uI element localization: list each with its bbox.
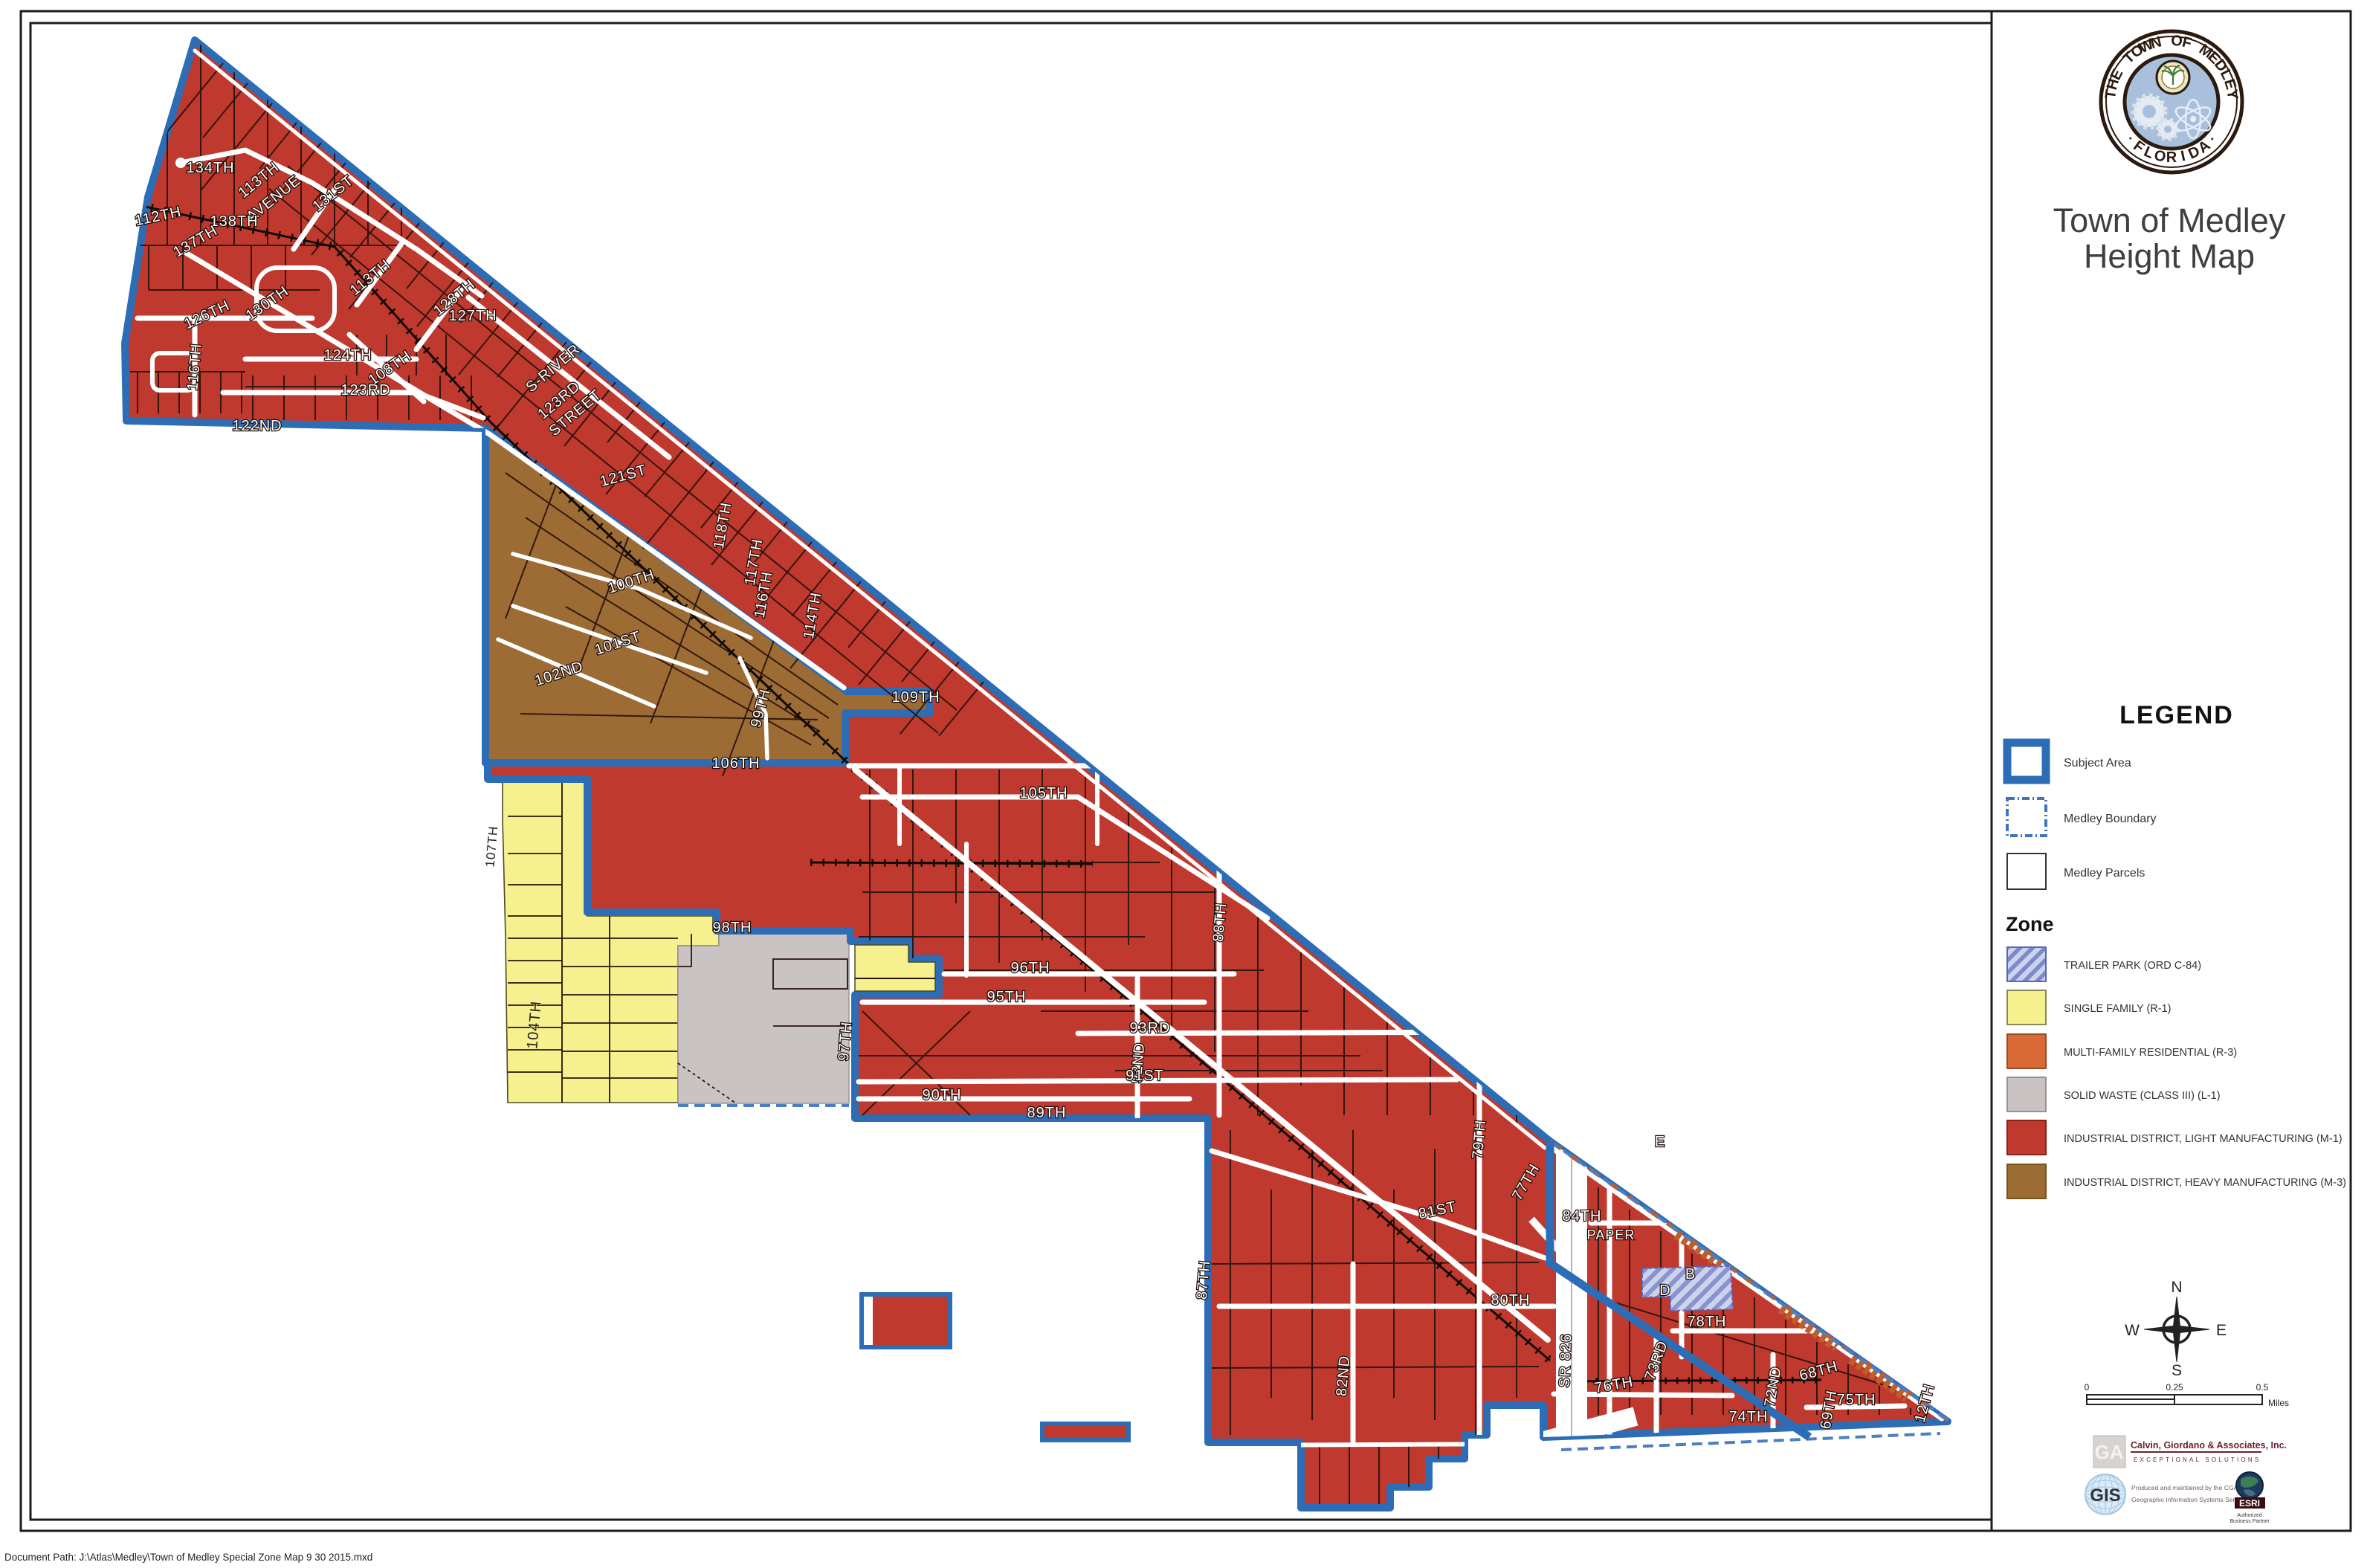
svg-text:Subject Area: Subject Area [2064, 757, 2131, 770]
svg-text:107TH: 107TH [483, 825, 501, 868]
svg-text:106TH: 106TH [711, 755, 760, 772]
svg-text:Zone: Zone [2006, 913, 2054, 935]
svg-text:Business Partner: Business Partner [2229, 1519, 2270, 1524]
svg-text:Document Path: J:\Atlas\Medley: Document Path: J:\Atlas\Medley\Town of M… [4, 1552, 372, 1563]
svg-text:R: R [2166, 149, 2177, 166]
svg-text:MULTI-FAMILY RESIDENTIAL (R-3): MULTI-FAMILY RESIDENTIAL (R-3) [2064, 1047, 2237, 1059]
svg-text:B: B [1685, 1266, 1696, 1283]
svg-text:Produced and maintained by the: Produced and maintained by the CGA [2131, 1484, 2238, 1491]
svg-text:D: D [1659, 1283, 1670, 1299]
svg-text:ESRI: ESRI [2239, 1498, 2260, 1509]
svg-text:Medley Parcels: Medley Parcels [2064, 867, 2145, 880]
svg-text:Medley Boundary: Medley Boundary [2064, 813, 2157, 825]
svg-text:N: N [2171, 1279, 2182, 1296]
svg-text:95TH: 95TH [987, 989, 1027, 1005]
svg-text:PAPER: PAPER [1587, 1227, 1636, 1242]
svg-text:79TH: 79TH [1470, 1119, 1490, 1160]
svg-text:0.25: 0.25 [2166, 1382, 2183, 1393]
svg-text:87TH: 87TH [1194, 1259, 1214, 1300]
svg-text:98TH: 98TH [713, 920, 752, 936]
svg-text:Height Map: Height Map [2084, 237, 2255, 275]
svg-text:93RD: 93RD [1129, 1020, 1170, 1036]
svg-text:LEGEND: LEGEND [2119, 701, 2234, 729]
svg-text:0.5: 0.5 [2256, 1382, 2269, 1393]
svg-text:INDUSTRIAL DISTRICT, LIGHT MAN: INDUSTRIAL DISTRICT, LIGHT MANUFACTURING… [2064, 1133, 2342, 1145]
svg-text:EXCEPTIONAL SOLUTIONS: EXCEPTIONAL SOLUTIONS [2134, 1456, 2261, 1463]
svg-text:123RD: 123RD [340, 382, 390, 399]
svg-text:INDUSTRIAL DISTRICT, HEAVY MAN: INDUSTRIAL DISTRICT, HEAVY MANUFACTURING… [2064, 1177, 2346, 1189]
svg-text:122ND: 122ND [232, 418, 282, 434]
svg-text:89TH: 89TH [1027, 1105, 1067, 1121]
svg-text:S: S [2172, 1362, 2182, 1379]
svg-text:E: E [2216, 1322, 2227, 1339]
svg-text:97TH: 97TH [836, 1021, 856, 1062]
svg-text:105TH: 105TH [1019, 785, 1068, 801]
svg-text:138TH: 138TH [210, 213, 258, 230]
svg-text:124TH: 124TH [323, 347, 372, 364]
svg-text:Authorized: Authorized [2237, 1513, 2262, 1518]
svg-text:74TH: 74TH [1729, 1409, 1769, 1425]
svg-text:SR 826: SR 826 [1557, 1333, 1575, 1387]
svg-text:88TH: 88TH [1210, 902, 1230, 943]
svg-text:GIS: GIS [2090, 1485, 2120, 1506]
svg-text:84TH: 84TH [1563, 1208, 1602, 1225]
svg-text:SOLID WASTE (CLASS III) (L-1): SOLID WASTE (CLASS III) (L-1) [2064, 1090, 2221, 1102]
svg-text:78TH: 78TH [1688, 1314, 1727, 1330]
svg-text:90TH: 90TH [923, 1087, 962, 1103]
svg-text:Geographic Information Systems: Geographic Information Systems Services [2131, 1496, 2250, 1503]
svg-text:127TH: 127TH [448, 308, 497, 324]
svg-text:96TH: 96TH [1011, 960, 1050, 976]
svg-text:75TH: 75TH [1837, 1392, 1876, 1408]
svg-text:109TH: 109TH [891, 689, 940, 706]
svg-text:134TH: 134TH [186, 160, 234, 176]
svg-text:0: 0 [2085, 1382, 2090, 1393]
svg-text:GA: GA [2095, 1441, 2124, 1463]
svg-text:Miles: Miles [2268, 1398, 2289, 1408]
svg-text:SINGLE FAMILY (R-1): SINGLE FAMILY (R-1) [2064, 1003, 2172, 1015]
svg-text:80TH: 80TH [1491, 1292, 1531, 1309]
svg-text:Calvin, Giordano & Associates,: Calvin, Giordano & Associates, Inc. [2131, 1440, 2287, 1451]
svg-text:E: E [1655, 1134, 1665, 1150]
svg-text:Town of Medley: Town of Medley [2053, 201, 2286, 239]
svg-text:TRAILER PARK (ORD C-84): TRAILER PARK (ORD C-84) [2064, 960, 2201, 972]
svg-text:W: W [2125, 1322, 2140, 1339]
svg-text:91ST: 91ST [1126, 1068, 1164, 1084]
